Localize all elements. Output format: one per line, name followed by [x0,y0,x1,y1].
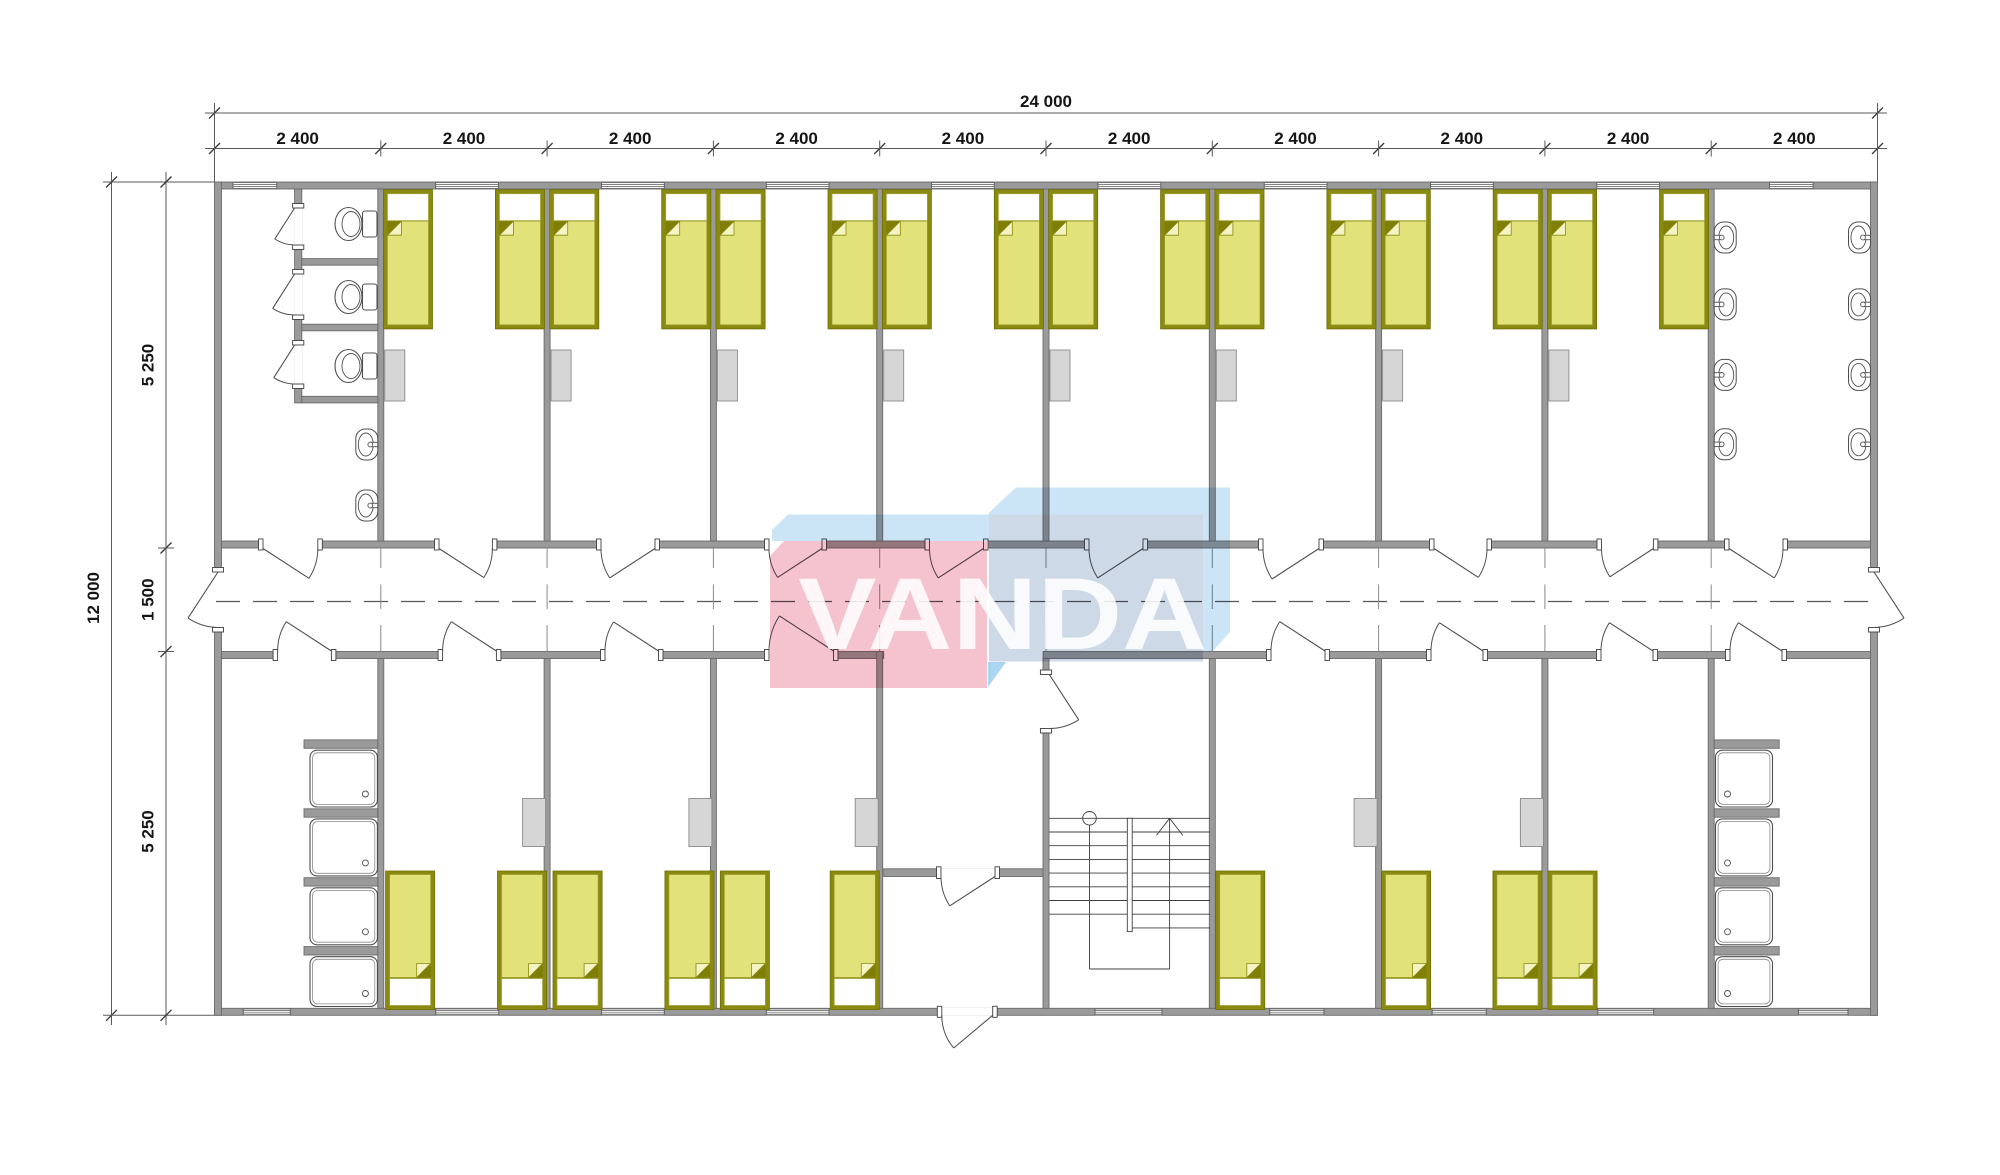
svg-text:2 400: 2 400 [775,129,818,148]
svg-text:5 250: 5 250 [139,344,158,387]
svg-text:12 000: 12 000 [84,572,103,624]
svg-text:VANDA: VANDA [798,557,1207,671]
svg-text:2 400: 2 400 [942,129,985,148]
svg-text:2 400: 2 400 [1607,129,1650,148]
svg-text:1 500: 1 500 [139,578,158,621]
svg-text:24 000: 24 000 [1020,92,1072,111]
svg-text:2 400: 2 400 [443,129,486,148]
svg-text:2 400: 2 400 [276,129,319,148]
svg-text:2 400: 2 400 [609,129,652,148]
svg-text:2 400: 2 400 [1773,129,1816,148]
svg-text:5 250: 5 250 [139,810,158,853]
svg-text:2 400: 2 400 [1274,129,1317,148]
svg-text:2 400: 2 400 [1108,129,1151,148]
svg-text:2 400: 2 400 [1441,129,1484,148]
